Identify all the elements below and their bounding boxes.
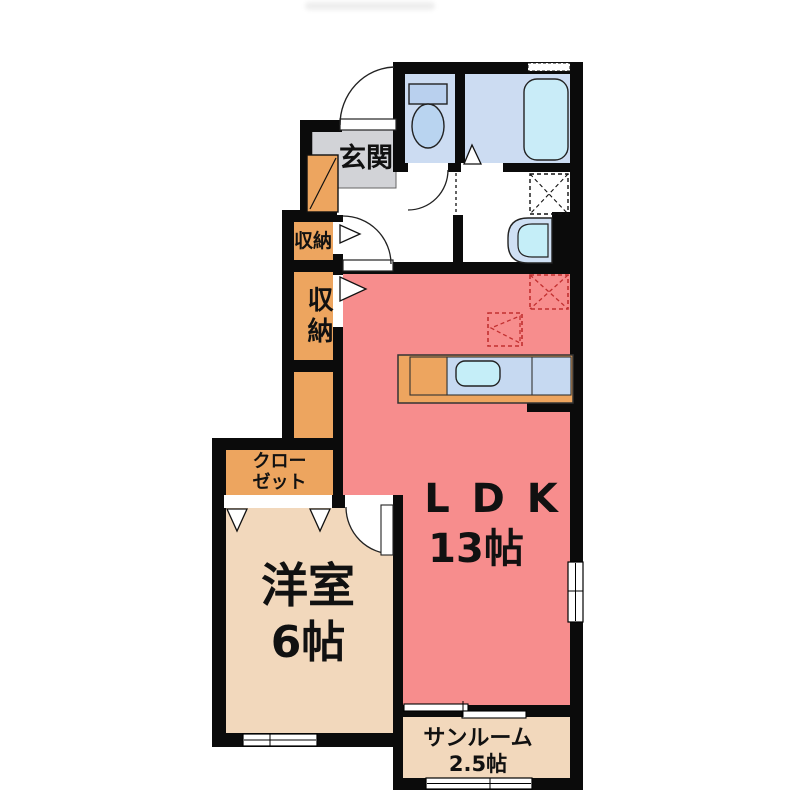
entrance-door-leaf — [340, 119, 396, 130]
storage-upper-door-triangle — [340, 225, 360, 243]
bathroom-top-window — [528, 63, 570, 71]
ldk-label: L D K — [418, 476, 568, 522]
toilet-tank-icon — [409, 84, 447, 104]
entrance-door-arc — [340, 67, 394, 125]
hall-ldk-door-leaf — [343, 260, 393, 271]
storage-upper-label: 収納 — [290, 231, 336, 253]
ldk-size: 13帖 — [418, 526, 534, 572]
western-room-size: 6帖 — [222, 618, 394, 669]
kitchen-sink-icon — [456, 361, 500, 386]
wall-closet-top — [212, 438, 343, 450]
western-room-label: 洋室 — [222, 560, 394, 614]
wall-closet-right — [333, 438, 343, 495]
floor-plan-drawing — [0, 0, 800, 800]
sunroom-size: 2.5帖 — [405, 752, 551, 776]
toilet-door-arc — [408, 170, 448, 210]
western-door-leaf — [381, 505, 393, 555]
toilet-bowl-icon — [412, 104, 444, 148]
bathtub-icon — [524, 79, 568, 160]
opening-toilet-door — [408, 163, 448, 172]
opening-closet — [224, 495, 332, 508]
closet-label: クロー ゼット — [228, 452, 331, 493]
storage-lower-label: 収納 — [300, 275, 332, 359]
sunroom-slider-pane-2 — [462, 711, 526, 718]
wall-toilet-right — [455, 74, 465, 172]
entrance-label: 玄関 — [336, 143, 396, 174]
closet-label-line2: ゼット — [253, 472, 307, 493]
closet-label-line1: クロー — [253, 451, 307, 472]
wall-washroom-jog — [552, 212, 570, 263]
wall-storage-divider-2 — [285, 260, 333, 272]
washbasin-bowl — [518, 224, 548, 257]
kitchen-stove-block — [410, 357, 447, 395]
wall-right — [570, 62, 583, 790]
storage-strip-floor — [294, 372, 333, 438]
wall-entrance-top — [300, 120, 342, 132]
floor-plan: 玄関 収納 収納 クロー ゼット 洋室 6帖 L D K 13帖 サンルーム 2… — [0, 0, 800, 800]
sunroom-label: サンルーム — [405, 726, 551, 751]
hall-ldk-door-arc — [343, 216, 391, 264]
sunroom-slider-pane-1 — [404, 704, 468, 711]
wall-storage-divider-3 — [285, 360, 333, 372]
